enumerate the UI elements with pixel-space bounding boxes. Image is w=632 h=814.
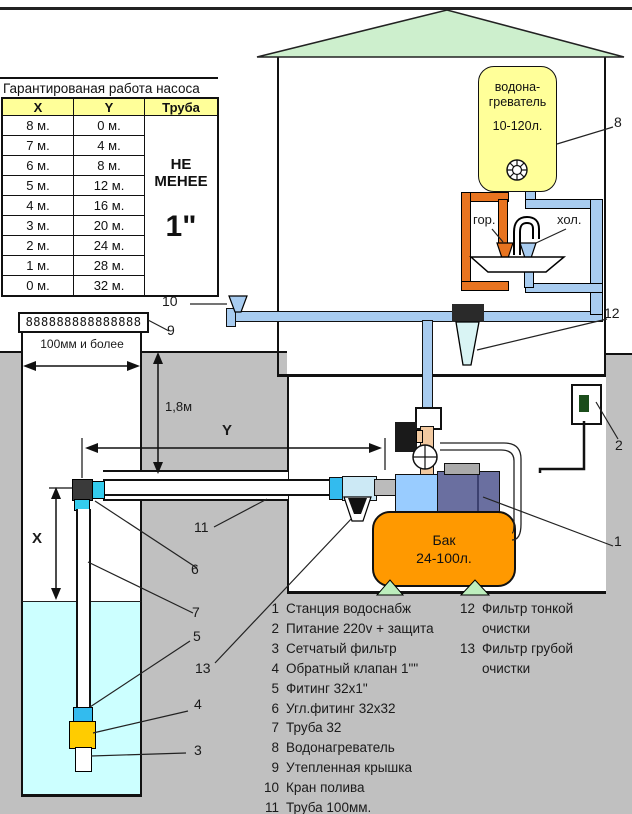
pipe-size: 1" bbox=[145, 210, 217, 244]
heater-capacity: 10-120л. bbox=[479, 119, 556, 134]
cell-y: 32 м. bbox=[74, 276, 145, 297]
pump-head bbox=[395, 474, 439, 513]
tank-capacity: 24-100л. bbox=[416, 549, 472, 567]
callout-7: 7 bbox=[192, 604, 200, 620]
callout-13: 13 bbox=[195, 660, 211, 676]
water-supply-diagram: 888888888888888 Бак 24-100л. bbox=[0, 0, 632, 814]
table-title: Гарантированая работа насоса bbox=[3, 81, 200, 96]
depth-label: 1,8м bbox=[165, 399, 192, 414]
legend-item: 9Утепленная крышка bbox=[253, 758, 453, 778]
legend-item: 13Фильтр грубой bbox=[449, 639, 629, 659]
hot-tap-icon bbox=[497, 243, 513, 258]
legend-column-1: 1Станция водоснабж 2Питание 220v + защит… bbox=[253, 599, 453, 814]
fine-filter-cone bbox=[456, 322, 479, 365]
callout-11: 11 bbox=[194, 519, 209, 535]
pipe-note-cell: НЕ МЕНЕЕ 1" bbox=[145, 116, 219, 297]
elbow-fitting-right bbox=[92, 481, 105, 499]
cold-pipe-right bbox=[590, 199, 603, 315]
callout-2: 2 bbox=[615, 437, 623, 453]
pointer-12 bbox=[477, 319, 607, 350]
legend-column-2: 12Фильтр тонкой очистки 13Фильтр грубой … bbox=[449, 599, 629, 679]
pipe-end-cap bbox=[226, 308, 236, 327]
callout-5: 5 bbox=[193, 628, 201, 644]
pipe-note-2: МЕНЕЕ bbox=[154, 173, 207, 190]
mesh-strainer bbox=[75, 747, 92, 772]
cold-pipe-bottom bbox=[525, 283, 603, 293]
outlet-socket bbox=[579, 395, 589, 412]
cell-x: 0 м. bbox=[2, 276, 74, 297]
house-left-wall bbox=[277, 57, 279, 377]
faucet-outline bbox=[517, 220, 536, 255]
cell-y: 20 м. bbox=[74, 216, 145, 236]
motor-terminal-cap bbox=[444, 463, 480, 475]
basement-floor-line bbox=[287, 591, 606, 594]
x-dim-label: X bbox=[32, 530, 42, 547]
switch-tab bbox=[416, 430, 423, 443]
cell-x: 1 м. bbox=[2, 256, 74, 276]
cell-x: 3 м. bbox=[2, 216, 74, 236]
well-drop-pipe bbox=[76, 509, 91, 707]
pressure-switch bbox=[395, 422, 417, 452]
roof bbox=[257, 10, 624, 57]
table-row: 8 м. 0 м. НЕ МЕНЕЕ 1" bbox=[2, 116, 218, 136]
legend-item: 11Труба 100мм. bbox=[253, 798, 453, 814]
cell-y: 28 м. bbox=[74, 256, 145, 276]
cold-label: хол. bbox=[557, 212, 582, 227]
cell-y: 4 м. bbox=[74, 136, 145, 156]
callout-3: 3 bbox=[194, 742, 202, 758]
cell-x: 5 м. bbox=[2, 176, 74, 196]
callout-10: 10 bbox=[162, 293, 178, 309]
cold-tap-riser bbox=[524, 258, 534, 288]
cell-x: 4 м. bbox=[2, 196, 74, 216]
table-header-row: X Y Труба bbox=[2, 98, 218, 116]
header-y: Y bbox=[74, 98, 145, 116]
pointer-9 bbox=[148, 320, 169, 331]
legend-item: 2Питание 220v + защита bbox=[253, 619, 453, 639]
legend-item: 4Обратный клапан 1"" bbox=[253, 659, 453, 679]
riser-pipe-blue bbox=[422, 320, 433, 410]
legend-item: очистки bbox=[449, 619, 629, 639]
pump-motor bbox=[437, 471, 500, 513]
callout-12: 12 bbox=[604, 305, 620, 321]
legend-item: 8Водонагреватель bbox=[253, 738, 453, 758]
legend-item: 6Угл.фитинг 32х32 bbox=[253, 699, 453, 719]
cell-x: 6 м. bbox=[2, 156, 74, 176]
water-heater: водона- греватель 10-120л. bbox=[478, 66, 557, 192]
house-floor-line bbox=[277, 374, 606, 377]
pressure-tank: Бак 24-100л. bbox=[372, 511, 516, 587]
hot-pipe-left bbox=[461, 192, 471, 291]
cover-hatch-pattern: 888888888888888 bbox=[26, 315, 142, 329]
legend-item: 7Труба 32 bbox=[253, 718, 453, 738]
cell-y: 24 м. bbox=[74, 236, 145, 256]
table-top-rule bbox=[0, 77, 218, 79]
heater-name-line1: водона- bbox=[479, 80, 556, 95]
cell-x: 2 м. bbox=[2, 236, 74, 256]
fine-filter-head bbox=[452, 304, 484, 322]
suction-pipe-32 bbox=[103, 479, 332, 496]
callout-6: 6 bbox=[191, 561, 199, 577]
tank-name: Бак bbox=[432, 531, 455, 549]
callout-9: 9 bbox=[167, 322, 175, 338]
cell-y: 12 м. bbox=[74, 176, 145, 196]
cell-y: 8 м. bbox=[74, 156, 145, 176]
tee-body bbox=[342, 476, 377, 501]
callout-1: 1 bbox=[614, 533, 622, 549]
faucet-icon bbox=[517, 220, 536, 255]
pointer-cold bbox=[536, 229, 566, 243]
cell-y: 16 м. bbox=[74, 196, 145, 216]
legend-item: очистки bbox=[449, 659, 629, 679]
heater-name-line2: греватель bbox=[479, 95, 556, 110]
elbow-fitting-body bbox=[72, 479, 93, 501]
sink-basin bbox=[471, 257, 564, 272]
legend-item: 1Станция водоснабж bbox=[253, 599, 453, 619]
cell-x: 7 м. bbox=[2, 136, 74, 156]
house-right-wall bbox=[604, 57, 606, 377]
main-supply-pipe bbox=[228, 311, 603, 322]
cell-x: 8 м. bbox=[2, 116, 74, 136]
legend-item: 3Сетчатый фильтр bbox=[253, 639, 453, 659]
legend-item: 10Кран полива bbox=[253, 778, 453, 798]
pipe-note-1: НЕ bbox=[171, 156, 192, 173]
well-width-label: 100мм и более bbox=[20, 337, 144, 351]
cold-tap-icon bbox=[520, 243, 536, 258]
legend-item: 12Фильтр тонкой bbox=[449, 599, 629, 619]
legend-item: 5Фитинг 32х1" bbox=[253, 679, 453, 699]
header-pipe: Труба bbox=[145, 98, 219, 116]
top-border-rule bbox=[0, 7, 632, 10]
header-x: X bbox=[2, 98, 74, 116]
hot-label: гор. bbox=[473, 212, 496, 227]
y-dim-label: Y bbox=[222, 422, 232, 439]
cell-y: 0 м. bbox=[74, 116, 145, 136]
callout-4: 4 bbox=[194, 696, 202, 712]
callout-8: 8 bbox=[614, 114, 622, 130]
motor-divider bbox=[477, 471, 479, 511]
well-insulated-cover: 888888888888888 bbox=[18, 312, 149, 333]
pump-capacity-table: X Y Труба 8 м. 0 м. НЕ МЕНЕЕ 1" 7 м.4 м.… bbox=[1, 97, 219, 297]
hot-tap-stem bbox=[498, 199, 508, 245]
check-valve bbox=[69, 721, 96, 749]
hot-pipe-bottom bbox=[461, 281, 509, 291]
